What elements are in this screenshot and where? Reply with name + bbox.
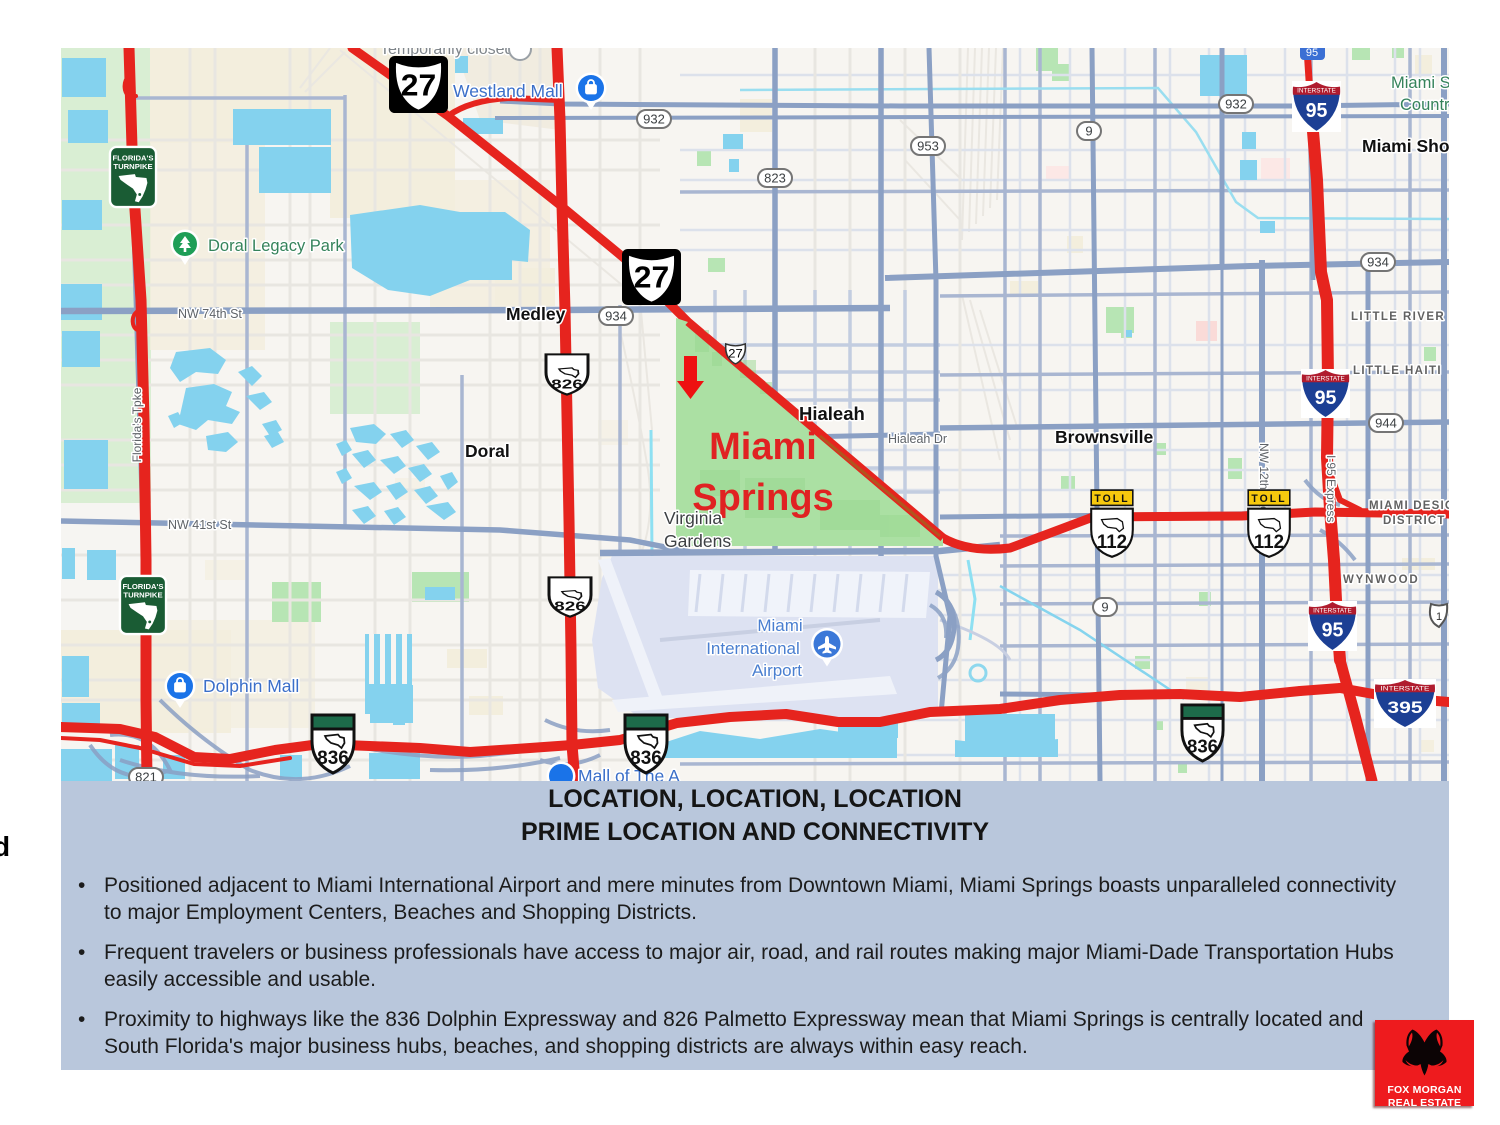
svg-text:Brownsville: Brownsville [1055,427,1153,447]
svg-text:Doral Legacy Park: Doral Legacy Park [208,237,344,255]
svg-text:Miami S: Miami S [1391,74,1449,92]
svg-text:NW 74th St: NW 74th St [178,307,242,321]
svg-text:934: 934 [605,309,627,324]
svg-text:TOLL: TOLL [1251,493,1286,505]
svg-text:Gardens: Gardens [664,531,731,551]
svg-text:Doral: Doral [465,441,510,461]
svg-text:NW 41st St: NW 41st St [168,518,232,532]
svg-text:INTERSTATE: INTERSTATE [1306,375,1345,382]
svg-text:27: 27 [401,68,436,102]
svg-text:Medley: Medley [506,304,566,324]
svg-text:Hialeah: Hialeah [799,403,865,424]
svg-text:826: 826 [554,599,586,613]
svg-text:Countr: Countr [1400,96,1449,114]
svg-text:932: 932 [643,112,665,127]
svg-text:MIAMI DESIG: MIAMI DESIG [1369,500,1449,512]
svg-text:Miami Sho: Miami Sho [1362,136,1449,156]
svg-text:Virginia: Virginia [664,508,722,528]
svg-text:112: 112 [1097,532,1127,554]
svg-text:Miami: Miami [709,426,817,468]
svg-text:Miami: Miami [757,616,802,635]
svg-text:9: 9 [1085,124,1092,139]
svg-text:27: 27 [634,260,669,294]
svg-text:944: 944 [1375,416,1397,431]
svg-text:Airport: Airport [752,661,802,680]
svg-text:DISTRICT: DISTRICT [1383,515,1446,527]
svg-text:Florida's Tpke: Florida's Tpke [130,387,144,462]
svg-text:TURNPIKE: TURNPIKE [113,162,152,171]
svg-text:Westland Mall: Westland Mall [453,81,563,101]
svg-text:LITTLE RIVER: LITTLE RIVER [1351,311,1445,323]
svg-text:953: 953 [917,139,939,154]
svg-text:I-95 Express: I-95 Express [1324,455,1338,522]
svg-text:FLORIDA'S: FLORIDA'S [122,582,163,591]
svg-text:INTERSTATE: INTERSTATE [1313,607,1352,614]
svg-text:826: 826 [551,377,583,392]
svg-text:821: 821 [135,770,157,782]
svg-text:9: 9 [1101,600,1108,615]
svg-text:95: 95 [1322,619,1344,641]
svg-text:INTERSTATE: INTERSTATE [1381,684,1430,692]
svg-text:836: 836 [317,748,349,769]
svg-text:LITTLE HAITI: LITTLE HAITI [1353,365,1442,377]
svg-text:TURNPIKE: TURNPIKE [123,591,162,600]
svg-text:95: 95 [1315,387,1337,409]
svg-text:95: 95 [1306,100,1328,122]
svg-text:112: 112 [1254,532,1284,554]
svg-text:WYNWOOD: WYNWOOD [1343,574,1419,586]
svg-text:27: 27 [728,347,743,360]
svg-text:Mall of The A: Mall of The A [578,766,680,781]
svg-text:395: 395 [1387,699,1423,717]
svg-text:International: International [706,639,800,658]
svg-text:1: 1 [1436,611,1442,623]
svg-text:932: 932 [1225,97,1247,112]
svg-text:TOLL: TOLL [1094,493,1129,505]
svg-text:934: 934 [1367,255,1389,270]
svg-text:FLORIDA'S: FLORIDA'S [112,153,153,162]
svg-text:Hialeah Dr: Hialeah Dr [888,432,947,446]
svg-text:INTERSTATE: INTERSTATE [1297,88,1336,95]
svg-text:95: 95 [1306,48,1318,59]
svg-text:823: 823 [764,171,786,186]
svg-text:Dolphin Mall: Dolphin Mall [203,676,299,696]
svg-text:836: 836 [630,748,662,769]
svg-text:836: 836 [1187,735,1218,756]
